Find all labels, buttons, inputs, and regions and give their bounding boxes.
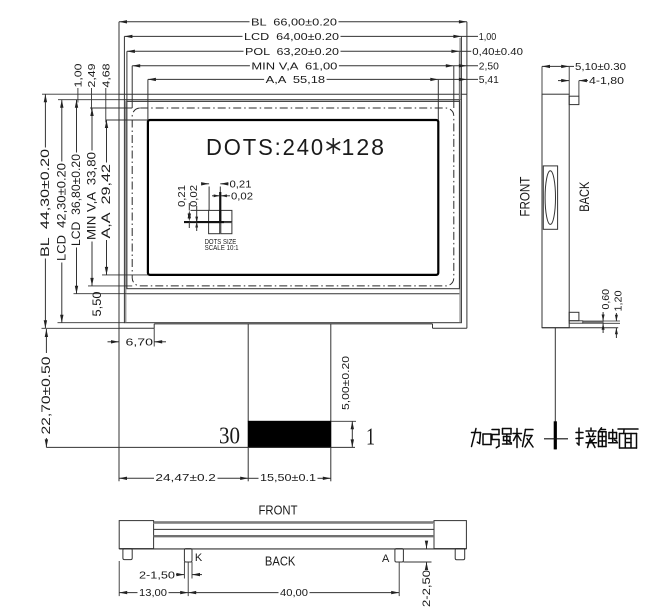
svg-text:LCD 42,30±0.20: LCD 42,30±0.20 [54,163,68,261]
svg-text:A,A 29,42: A,A 29,42 [99,164,113,239]
svg-text:A: A [382,553,390,565]
svg-text:A,A 55,18: A,A 55,18 [266,74,326,86]
svg-text:0,21: 0,21 [177,185,188,207]
svg-text:BACK: BACK [577,182,592,212]
svg-text:22,70±0.50: 22,70±0.50 [39,356,53,434]
svg-text:LCD 36,80±0.20: LCD 36,80±0.20 [69,154,83,246]
svg-text:BACK: BACK [265,553,296,568]
svg-text:2-2,50: 2-2,50 [421,570,433,607]
svg-text:0,02: 0,02 [189,185,200,207]
svg-text:128: 128 [342,134,387,160]
svg-text:0,40±0.40: 0,40±0.40 [472,46,523,58]
svg-text:LCD 64,00±0.20: LCD 64,00±0.20 [244,31,339,43]
svg-text:13,00: 13,00 [139,587,167,599]
svg-text:4,68: 4,68 [102,63,113,88]
svg-text:1: 1 [366,425,375,451]
svg-text:24,47±0.2: 24,47±0.2 [155,472,216,484]
svg-text:5,00±0.20: 5,00±0.20 [341,355,352,410]
svg-text:0,02: 0,02 [231,191,253,203]
svg-text:30: 30 [219,424,240,450]
svg-text:40,00: 40,00 [280,587,308,599]
svg-text:DOTS:240: DOTS:240 [206,134,325,160]
svg-text:5,50: 5,50 [90,291,104,316]
svg-text:2,50: 2,50 [479,60,499,72]
svg-text:SCALE 10:1: SCALE 10:1 [205,243,239,252]
svg-text:MIN V,A 33,80: MIN V,A 33,80 [85,152,99,240]
svg-text:15,50±0.1: 15,50±0.1 [260,472,316,484]
svg-text:4-1,80: 4-1,80 [589,75,624,87]
svg-text:MIN V,A 61,00: MIN V,A 61,00 [251,60,337,72]
svg-text:1,20: 1,20 [614,290,625,311]
svg-text:5,10±0.30: 5,10±0.30 [575,61,626,73]
svg-text:BL 44,30±0.20: BL 44,30±0.20 [38,149,52,257]
svg-text:1,00: 1,00 [74,63,85,88]
svg-text:2,49: 2,49 [87,63,98,88]
svg-text:FRONT: FRONT [259,503,298,518]
svg-text:0,60: 0,60 [601,289,612,310]
svg-text:6,70: 6,70 [126,337,154,349]
svg-text:0,21: 0,21 [230,179,252,191]
svg-text:FRONT: FRONT [518,177,533,217]
svg-text:1,00: 1,00 [479,31,497,43]
svg-text:BL 66,00±0.20: BL 66,00±0.20 [251,16,337,28]
svg-text:POL 63,20±0.20: POL 63,20±0.20 [245,46,339,58]
svg-text:2-1,50: 2-1,50 [139,569,175,581]
svg-text:5,41: 5,41 [479,74,499,86]
svg-text:K: K [195,552,203,564]
